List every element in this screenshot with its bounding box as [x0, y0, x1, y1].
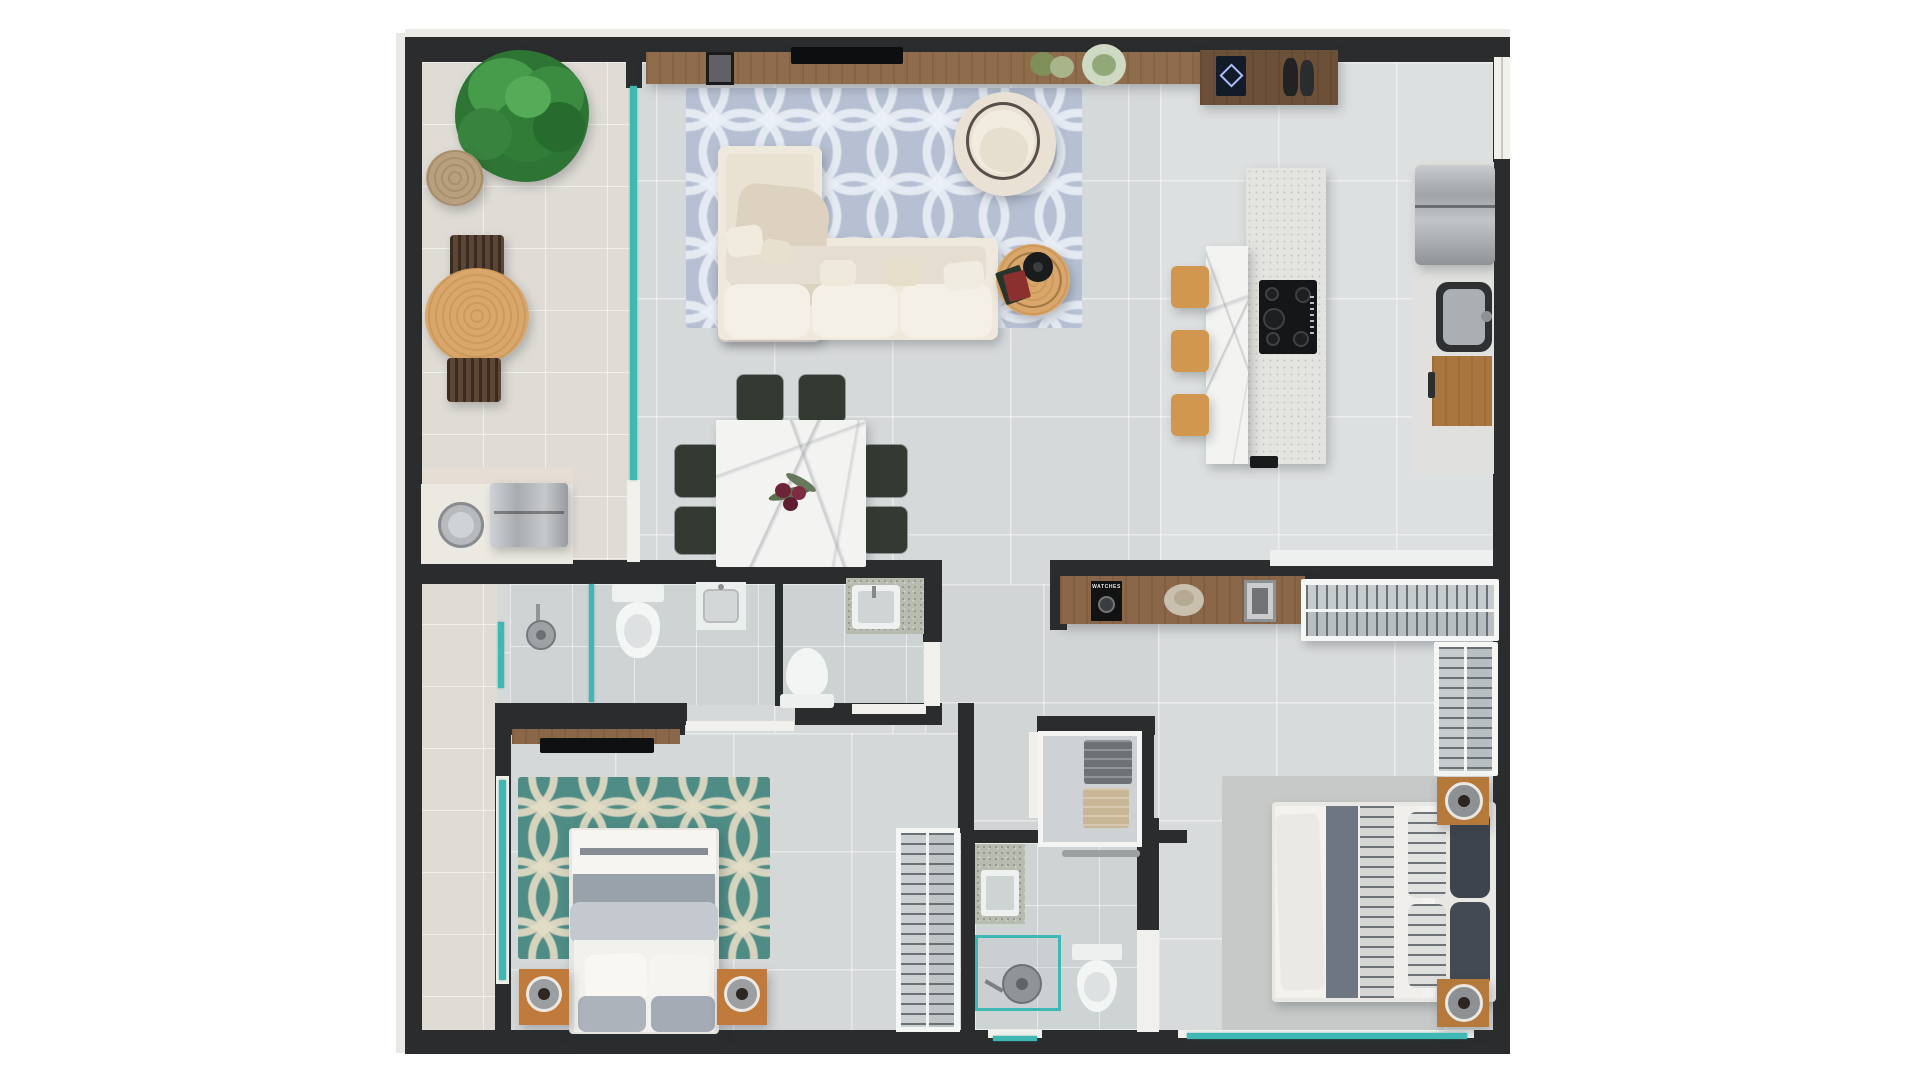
bedM-pillow-striped-2 [1408, 904, 1446, 988]
bed1-pillow-band [570, 902, 718, 944]
closet-clothes-gray [1084, 740, 1132, 784]
dining-chair-1 [736, 374, 784, 424]
frame-balcony-glass [627, 480, 640, 562]
glass-master-window [1187, 1033, 1467, 1039]
kitchen-cabinet [1432, 356, 1492, 426]
wall-bathM-left [961, 830, 975, 1033]
bedM-duvet-fold [1275, 813, 1325, 990]
grill-box [490, 483, 568, 547]
bar-stool-1 [1171, 266, 1209, 308]
bedroom1-rack-col1 [901, 833, 926, 1027]
glass-bedroom1-window [499, 780, 506, 980]
console-picture-frame [706, 52, 734, 85]
sofa-pillow-5 [943, 260, 986, 292]
sofa-pillow-1 [725, 224, 765, 259]
bar-stool-3 [1171, 394, 1209, 436]
bathM-toilet-tank [1072, 944, 1122, 960]
dining-chair-6 [861, 506, 908, 554]
bathM-toilet-seat [1084, 972, 1110, 1002]
console-flowers-2 [1050, 56, 1074, 78]
dining-flower-1 [775, 483, 791, 498]
bath1-vanity-sink [703, 589, 739, 623]
cooktop-controls [1310, 296, 1314, 338]
bath1-faucet [718, 584, 724, 590]
floor-plan: WATCHES [0, 0, 1920, 1080]
bed1-pillow-gray-2 [651, 996, 715, 1032]
burner-2 [1295, 287, 1311, 303]
bedM-pillow-dark-2 [1450, 902, 1490, 988]
tv-screen [791, 47, 903, 64]
wall-bath2-right [923, 560, 942, 642]
bath2-faucet [872, 586, 876, 598]
sofa-seat-2 [812, 284, 898, 338]
bath1-shower-dot [536, 630, 546, 640]
sofa-pillow-2 [759, 238, 793, 267]
bath2-toilet-bowl [786, 648, 828, 698]
bathM-sink-basin [986, 876, 1014, 910]
closet-rack-right-col2 [1467, 647, 1492, 771]
dining-chair-3 [674, 444, 721, 498]
tree-blob-6 [505, 76, 551, 118]
coral-decor-inner [1174, 590, 1194, 606]
fridge [1415, 165, 1495, 265]
wall-bathM-lower [1137, 930, 1159, 1032]
wall-left [405, 36, 422, 1036]
glass-bath1-door [498, 622, 504, 688]
threshold-bath2 [852, 704, 926, 714]
grill-sink-basin [448, 512, 474, 538]
wall-bed1-hall [958, 703, 974, 833]
kitchen-faucet [1481, 311, 1492, 322]
bed1-pillow-gray-1 [578, 996, 646, 1032]
bath2-toilet-tank [780, 694, 834, 708]
coffee-tray-cup [1033, 262, 1043, 272]
wall-bath-divider [775, 584, 783, 706]
fridge-door-line [1415, 205, 1495, 208]
sofa-seat-3 [900, 284, 992, 338]
glass-bathM-window [993, 1036, 1037, 1041]
bedM-band-striped [1360, 806, 1394, 998]
bed1-duvet-stripe [580, 848, 708, 855]
bar-stool-2 [1171, 330, 1209, 372]
bedM-throw-dark [1326, 806, 1358, 998]
sofa-pillow-4 [884, 260, 920, 286]
bathM-towel-bar [1062, 850, 1140, 857]
burner-4 [1266, 332, 1280, 346]
window-right [1494, 57, 1510, 159]
kitchen-bottom-counter [1270, 550, 1493, 566]
closet-rack-top-row2 [1306, 612, 1494, 636]
glass-bath1-shower [589, 584, 594, 702]
burner-1 [1265, 287, 1279, 301]
wall-bath2-lower [924, 642, 940, 706]
bedroom1-tv [540, 738, 654, 753]
glass-balcony-door [630, 86, 637, 480]
sofa-seat-1 [724, 284, 810, 338]
watches-book-dial [1098, 596, 1115, 613]
bedM-nightstand-top-dot [1458, 795, 1470, 807]
silver-frame-photo [1252, 588, 1268, 614]
shelf-figurine-1 [1283, 58, 1298, 96]
bed1-nightstand-left-dot [538, 988, 550, 1000]
closet-rack-top-row1 [1306, 585, 1494, 609]
grill-lid-line [494, 511, 564, 514]
balcony-round-table [425, 268, 529, 364]
dining-flower-3 [783, 497, 798, 511]
kitchen-sink-basin [1443, 289, 1485, 345]
burner-3 [1263, 308, 1285, 330]
dining-chair-5 [861, 444, 908, 498]
wall-balcony-stub [626, 36, 642, 88]
bedM-nightstand-bottom-dot [1458, 997, 1470, 1009]
bath1-toilet-seat [624, 614, 652, 648]
bedroom1-rack-col2 [929, 833, 954, 1027]
balcony-chair-bottom [447, 358, 501, 402]
shelf-figurine-2 [1300, 60, 1314, 96]
dining-chair-4 [674, 506, 721, 555]
island-sink-fixture [1250, 456, 1278, 468]
closet-rack-right-col1 [1439, 647, 1464, 771]
bath1-toilet-tank [612, 584, 664, 602]
burner-5 [1293, 331, 1309, 347]
sofa-pillow-3 [820, 260, 856, 286]
trim-left [396, 33, 405, 1053]
trim-top [405, 29, 1510, 37]
console-vase-inner [1092, 54, 1116, 76]
balcony-stump-table [426, 150, 484, 206]
kitchen-cabinet-handle [1428, 372, 1435, 398]
bath2-sink-basin [858, 591, 894, 623]
room-terrace-strip [421, 562, 497, 1032]
threshold-bedroom1 [686, 721, 794, 731]
bed1-nightstand-right-dot [736, 988, 748, 1000]
closet-clothes-beige [1083, 788, 1129, 828]
dining-chair-2 [798, 374, 846, 424]
island-marble-bar [1206, 246, 1248, 464]
bathM-shower-dot [1016, 978, 1028, 990]
